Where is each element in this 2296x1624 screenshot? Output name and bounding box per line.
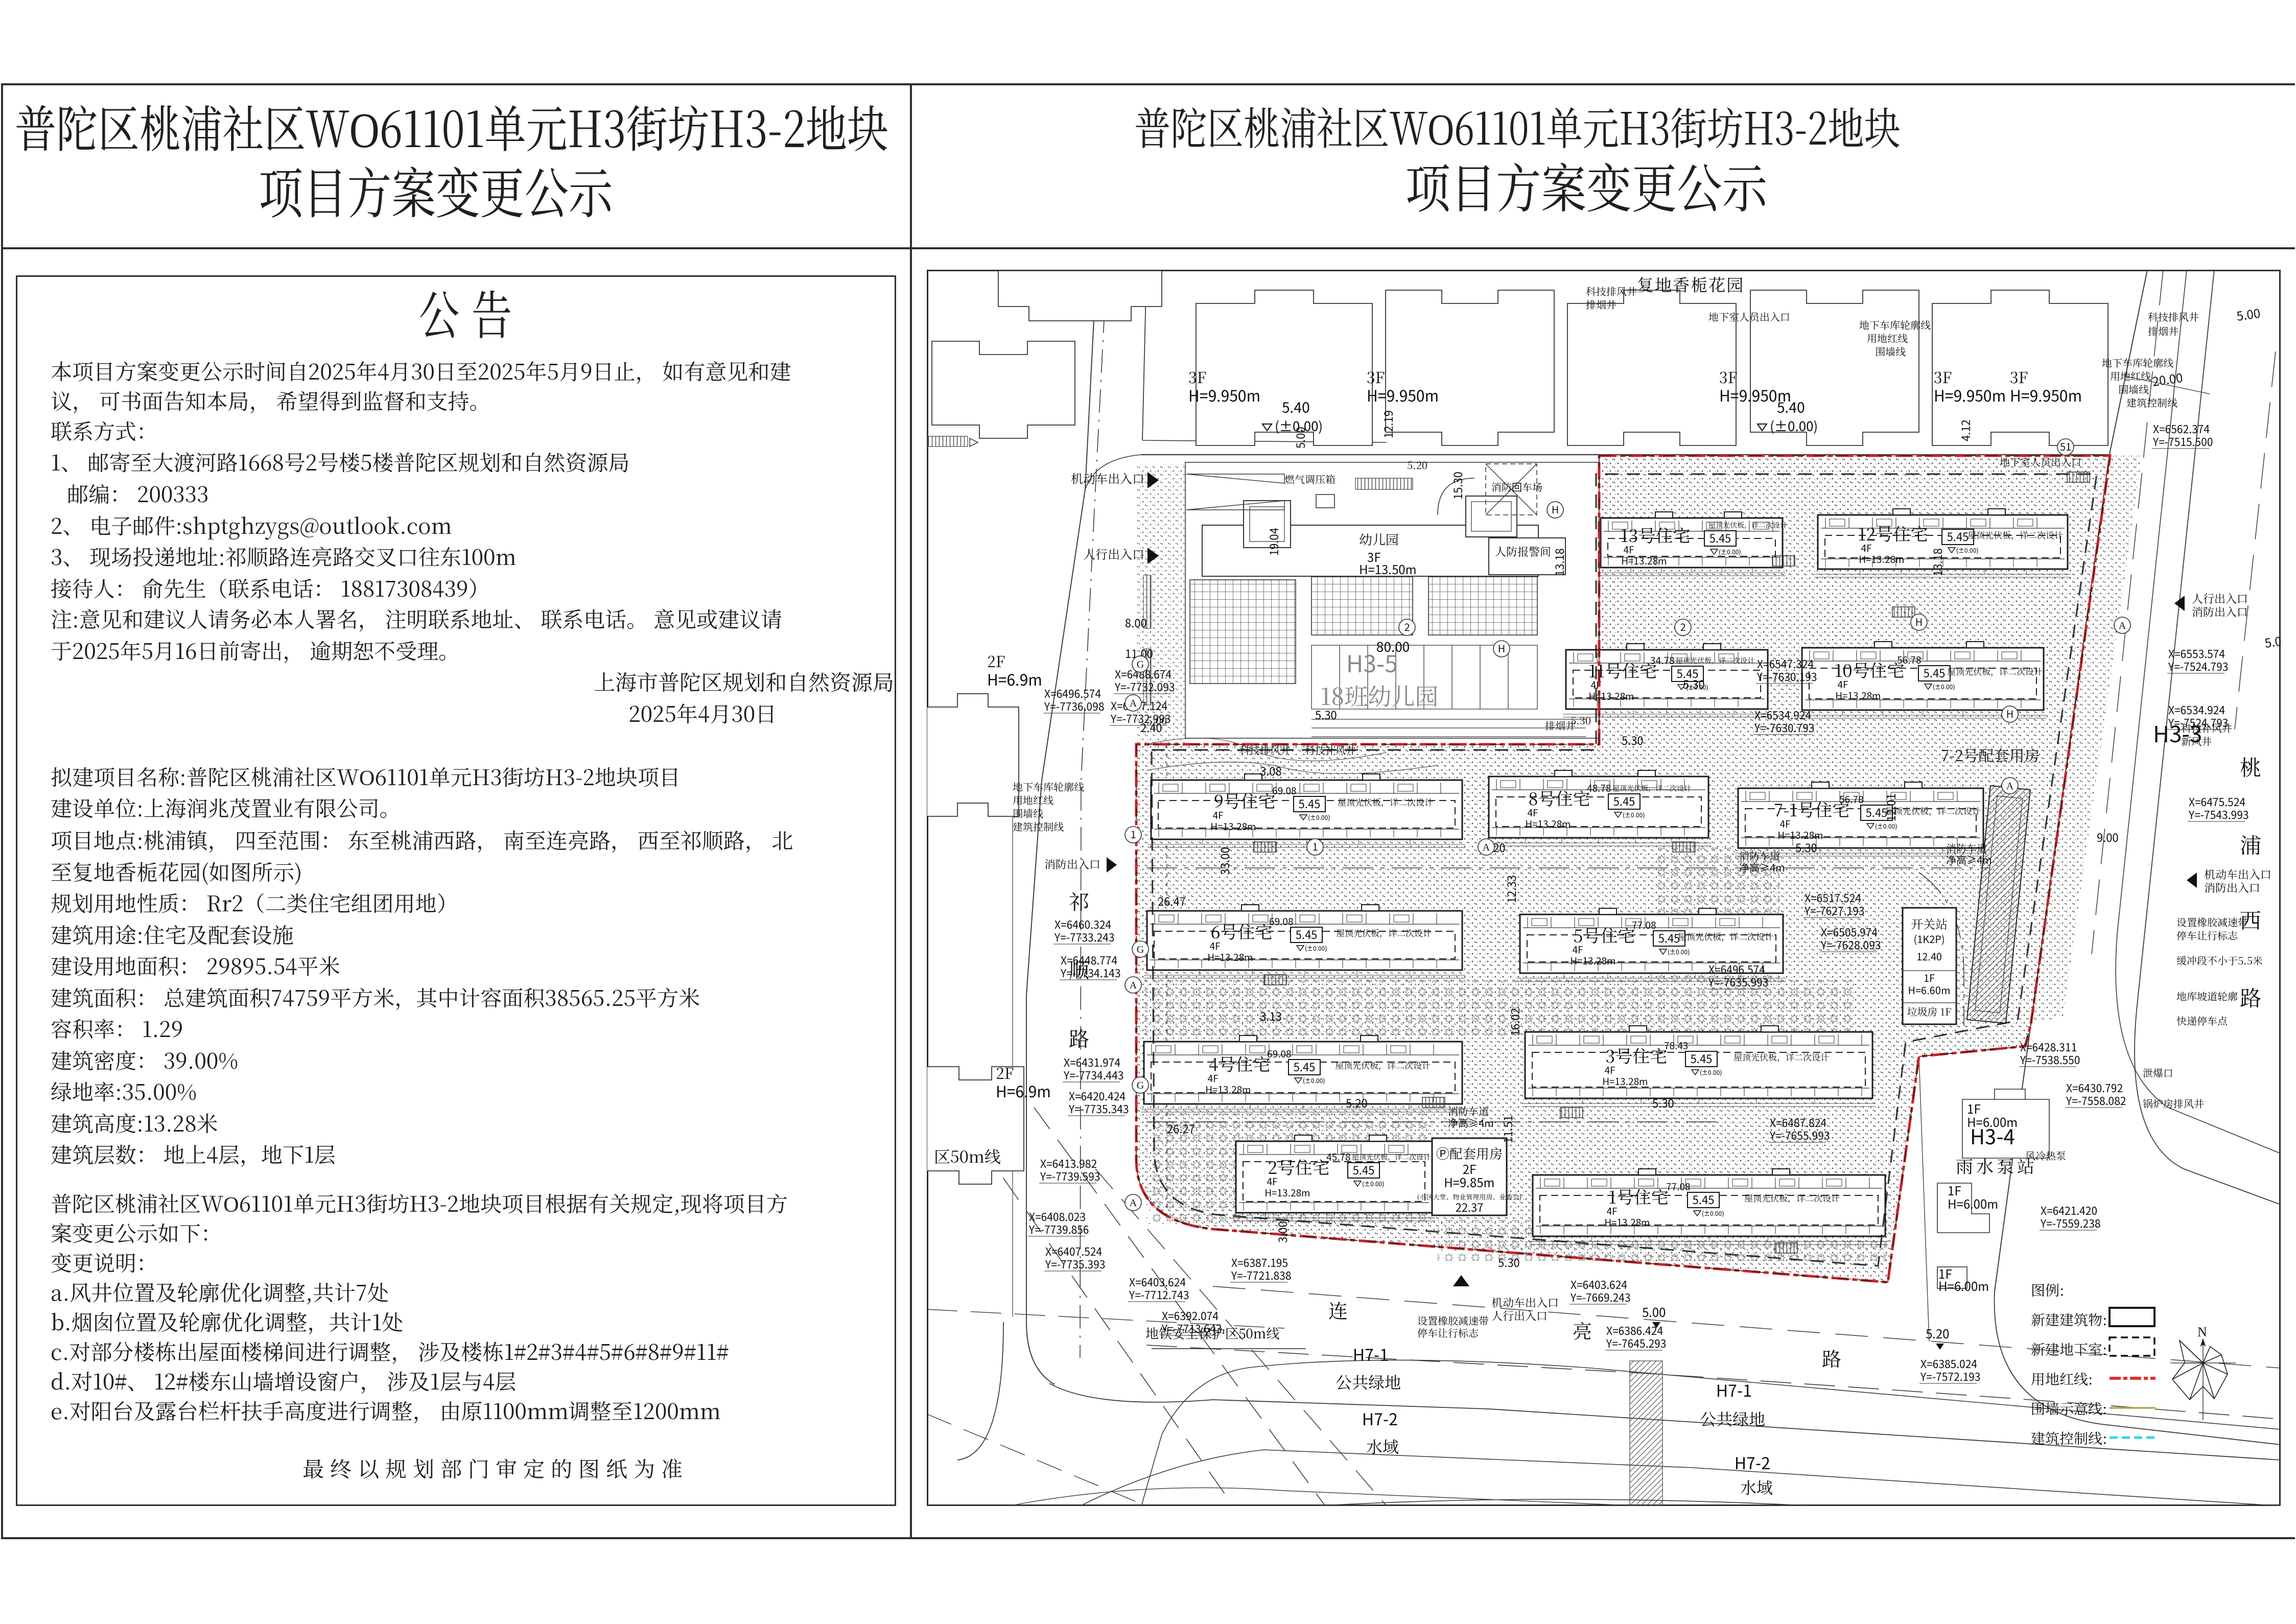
- svg-text:1: 1: [1130, 827, 1136, 841]
- svg-text:H=6.9m: H=6.9m: [996, 1079, 1051, 1102]
- svg-text:连: 连: [1328, 1296, 1348, 1324]
- svg-text:(±0.00): (±0.00): [1770, 416, 1818, 435]
- svg-text:新建地下室:: 新建地下室:: [2031, 1339, 2107, 1359]
- svg-text:H=9.950m: H=9.950m: [1188, 384, 1260, 406]
- svg-text:78.43: 78.43: [1664, 1039, 1688, 1052]
- svg-text:A: A: [1483, 839, 1490, 854]
- svg-text:H7-2: H7-2: [1735, 1451, 1770, 1474]
- svg-text:77.08: 77.08: [1666, 1180, 1690, 1193]
- svg-text:Y=-7713.643: Y=-7713.643: [1162, 1321, 1222, 1336]
- svg-text:Y=-7635.993: Y=-7635.993: [1708, 975, 1769, 990]
- svg-text:H=13.28m: H=13.28m: [1205, 1082, 1251, 1096]
- svg-text:5.30: 5.30: [1652, 1095, 1674, 1111]
- svg-text:地库坡道轮廓: 地库坡道轮廓: [2176, 988, 2238, 1003]
- svg-text:(1K2P): (1K2P): [1913, 931, 1944, 946]
- svg-text:(±0.00): (±0.00): [1308, 813, 1330, 822]
- svg-text:5.00: 5.00: [2263, 630, 2281, 651]
- svg-text:5.45: 5.45: [1693, 1191, 1715, 1208]
- svg-text:H: H: [1915, 614, 1923, 629]
- svg-text:A: A: [1130, 695, 1137, 710]
- svg-text:Y=-7559.238: Y=-7559.238: [2041, 1216, 2101, 1231]
- svg-text:5.30: 5.30: [1683, 676, 1705, 692]
- svg-text:69.08: 69.08: [1267, 1047, 1291, 1061]
- svg-text:消防出入口: 消防出入口: [1044, 856, 1100, 872]
- svg-text:13.18: 13.18: [1551, 548, 1567, 576]
- svg-text:Y=-7627.193: Y=-7627.193: [1805, 903, 1865, 919]
- svg-text:5.20: 5.20: [1926, 1324, 1950, 1342]
- svg-text:建筑控制线:: 建筑控制线:: [2031, 1428, 2107, 1448]
- svg-text:人防报警间: 人防报警间: [1495, 544, 1551, 559]
- svg-text:20.00: 20.00: [2151, 368, 2184, 390]
- svg-text:亮: 亮: [1573, 1316, 1592, 1344]
- svg-text:Y=-7558.082: Y=-7558.082: [2066, 1093, 2126, 1109]
- svg-text:3.00: 3.00: [1274, 1221, 1291, 1243]
- svg-text:2: 2: [1680, 619, 1685, 634]
- svg-text:净高≥4m: 净高≥4m: [1448, 1115, 1494, 1130]
- svg-text:Y=-7515.500: Y=-7515.500: [2153, 434, 2213, 450]
- svg-text:地下室人员出入口: 地下室人员出入口: [2000, 454, 2081, 469]
- svg-text:科技排风井: 科技排风井: [1239, 742, 1291, 757]
- svg-text:H=13.28m: H=13.28m: [1604, 1215, 1650, 1229]
- svg-text:2: 2: [1404, 619, 1410, 634]
- svg-text:(±0.00): (±0.00): [1875, 822, 1897, 831]
- svg-text:H=6.9m: H=6.9m: [987, 668, 1042, 690]
- svg-text:H=6.00m: H=6.00m: [1948, 1194, 1999, 1212]
- svg-text:垃圾房 1F: 垃圾房 1F: [1907, 1004, 1951, 1019]
- svg-text:H: H: [1498, 641, 1506, 655]
- svg-text:Y=-7712.743: Y=-7712.743: [1129, 1287, 1189, 1303]
- svg-text:77.08: 77.08: [1632, 918, 1656, 932]
- svg-text:H=13.28m: H=13.28m: [1859, 552, 1904, 566]
- svg-text:45.78: 45.78: [1326, 1150, 1350, 1164]
- svg-text:48.78: 48.78: [1587, 781, 1611, 795]
- svg-text:科技排风井: 科技排风井: [2148, 309, 2199, 324]
- svg-text:(±0.00): (±0.00): [1933, 682, 1955, 691]
- svg-text:消防出入口: 消防出入口: [2204, 880, 2260, 896]
- svg-text:Y=-7734.443: Y=-7734.443: [1064, 1068, 1124, 1083]
- svg-text:屋顶光伏板，详二次设计: 屋顶光伏板，详二次设计: [1335, 1058, 1431, 1071]
- svg-text:人行出入口: 人行出入口: [1083, 545, 1144, 562]
- svg-text:G: G: [1137, 1077, 1144, 1092]
- svg-text:地下车库轮廓线: 地下车库轮廓线: [1013, 779, 1084, 794]
- svg-text:屋顶光伏板，详二次设计: 屋顶光伏板，详二次设计: [1336, 926, 1432, 939]
- svg-text:5.40: 5.40: [1282, 397, 1309, 417]
- svg-text:(±0.00): (±0.00): [1303, 1076, 1325, 1085]
- svg-text:H=9.950m: H=9.950m: [2010, 384, 2082, 406]
- svg-text:80.00: 80.00: [1376, 637, 1410, 656]
- svg-text:Y=-7645.293: Y=-7645.293: [1606, 1336, 1667, 1351]
- svg-text:(±0.00): (±0.00): [1700, 1068, 1722, 1077]
- svg-text:H=13.28m: H=13.28m: [1525, 817, 1571, 831]
- svg-text:屋顶光伏板，详二次设计: 屋顶光伏板，详二次设计: [1967, 528, 2063, 541]
- svg-text:停车让行标志: 停车让行标志: [1417, 1325, 1479, 1340]
- svg-text:区50m线: 区50m线: [934, 1144, 1001, 1168]
- svg-text:幼儿园: 幼儿园: [1359, 530, 1399, 549]
- svg-text:5.00: 5.00: [1642, 1303, 1666, 1321]
- svg-text:5.45: 5.45: [1924, 665, 1946, 681]
- svg-text:H=13.28m: H=13.28m: [1264, 1186, 1310, 1199]
- svg-text:69.08: 69.08: [1272, 784, 1296, 797]
- svg-text:H=6.00m: H=6.00m: [1938, 1277, 1989, 1295]
- svg-text:屋顶光伏板，详二次设计: 屋顶光伏板，详二次设计: [1352, 1152, 1431, 1162]
- svg-text:5.20: 5.20: [1346, 1095, 1368, 1111]
- svg-text:5.30: 5.30: [1795, 839, 1817, 856]
- svg-text:开关站: 开关站: [1911, 914, 1948, 932]
- svg-text:5.45: 5.45: [1947, 528, 1969, 545]
- svg-text:(±0.00): (±0.00): [1305, 944, 1327, 953]
- svg-text:H: H: [1552, 502, 1559, 516]
- svg-text:地下室人员出入口: 地下室人员出入口: [1708, 309, 1790, 324]
- svg-text:3.08: 3.08: [1260, 763, 1282, 779]
- svg-text:科技排风井: 科技排风井: [1586, 284, 1637, 298]
- svg-text:用地红线: 用地红线: [2110, 368, 2151, 383]
- svg-text:1: 1: [1312, 839, 1318, 854]
- svg-text:建筑控制线: 建筑控制线: [2126, 395, 2177, 410]
- svg-text:12.19: 12.19: [1380, 410, 1396, 438]
- svg-text:(±0.00): (±0.00): [1362, 1180, 1384, 1188]
- svg-text:公共绿地: 公共绿地: [1700, 1407, 1765, 1430]
- svg-text:排烟井: 排烟井: [1586, 297, 1616, 312]
- svg-text:设置橡胶减速带: 设置橡胶减速带: [2176, 914, 2248, 929]
- svg-text:Y=-7543.993: Y=-7543.993: [2189, 807, 2249, 822]
- svg-text:围墙线: 围墙线: [1875, 344, 1906, 359]
- svg-text:净高≥4m: 净高≥4m: [1739, 860, 1785, 875]
- svg-text:Y=-7655.993: Y=-7655.993: [1770, 1128, 1830, 1143]
- svg-text:G: G: [1137, 656, 1144, 671]
- svg-text:34.78: 34.78: [1650, 653, 1674, 667]
- svg-text:H7-2: H7-2: [1362, 1407, 1398, 1430]
- svg-text:公共绿地: 公共绿地: [1336, 1370, 1401, 1394]
- svg-text:锅炉房排风井: 锅炉房排风井: [2143, 1096, 2204, 1111]
- svg-text:浦: 浦: [2240, 829, 2261, 860]
- svg-text:H=13.28m: H=13.28m: [1835, 689, 1881, 702]
- svg-text:Y=-7739.593: Y=-7739.593: [1040, 1169, 1100, 1184]
- svg-text:复地香栀花园: 复地香栀花园: [1637, 272, 1744, 296]
- svg-text:Y=-7739.856: Y=-7739.856: [1029, 1222, 1089, 1237]
- svg-text:26.47: 26.47: [1158, 893, 1186, 909]
- svg-text:Y=-7628.093: Y=-7628.093: [1821, 937, 1881, 953]
- svg-text:Y=-7538.550: Y=-7538.550: [2020, 1052, 2080, 1068]
- svg-text:69.08: 69.08: [1269, 914, 1293, 928]
- svg-text:7-2号配套用房: 7-2号配套用房: [1941, 743, 2040, 766]
- svg-text:屋顶光伏板，详二次设计: 屋顶光伏板，详二次设计: [1744, 1191, 1840, 1204]
- svg-text:Y=-7732.093: Y=-7732.093: [1115, 679, 1175, 695]
- svg-text:(±0.00): (±0.00): [1668, 948, 1690, 956]
- svg-text:5.30: 5.30: [1315, 707, 1337, 723]
- svg-text:用地红线: 用地红线: [1013, 792, 1053, 807]
- svg-text:Y=-7572.193: Y=-7572.193: [1920, 1369, 1981, 1384]
- svg-text:屋顶光伏板，详二次设计: 屋顶光伏板，详二次设计: [1947, 665, 2043, 677]
- svg-text:净高≥4m: 净高≥4m: [1946, 852, 1992, 867]
- svg-text:3.13: 3.13: [1260, 1008, 1282, 1024]
- svg-text:5.00: 5.00: [1292, 427, 1308, 449]
- svg-text:用地红线:: 用地红线:: [2031, 1369, 2093, 1389]
- svg-text:H=9.950m: H=9.950m: [1367, 384, 1439, 406]
- svg-text:1号住宅: 1号住宅: [1608, 1184, 1669, 1209]
- svg-text:56.78: 56.78: [1839, 792, 1863, 806]
- svg-text:5.30: 5.30: [1498, 1254, 1520, 1270]
- svg-text:H=13.28m: H=13.28m: [1621, 554, 1667, 568]
- svg-text:屋顶光伏板，详二次设计: 屋顶光伏板，详二次设计: [1733, 1050, 1829, 1063]
- svg-text:消防出入口: 消防出入口: [2192, 604, 2248, 620]
- svg-text:5.45: 5.45: [1709, 530, 1731, 546]
- svg-text:H=6.60m: H=6.60m: [1908, 982, 1950, 997]
- svg-text:风冷热泵: 风冷热泵: [2025, 1148, 2066, 1163]
- svg-text:9.00: 9.00: [2097, 829, 2119, 845]
- svg-text:H7-1: H7-1: [1353, 1343, 1389, 1366]
- svg-text:5.45: 5.45: [1294, 1058, 1316, 1075]
- svg-text:G: G: [1137, 941, 1144, 956]
- svg-text:排烟井: 排烟井: [2148, 323, 2178, 338]
- svg-text:泄爆口: 泄爆口: [2143, 1065, 2173, 1080]
- svg-text:5.45: 5.45: [1613, 793, 1635, 809]
- svg-text:5.20: 5.20: [1407, 457, 1427, 472]
- svg-text:停车让行标志: 停车让行标志: [2176, 928, 2238, 943]
- svg-text:消防回车场: 消防回车场: [1491, 479, 1542, 494]
- svg-text:Y=-7735.393: Y=-7735.393: [1045, 1257, 1106, 1272]
- svg-text:桃: 桃: [2240, 751, 2261, 782]
- svg-text:H7-1: H7-1: [1716, 1378, 1752, 1402]
- svg-text:水域: 水域: [1740, 1475, 1773, 1499]
- svg-text:5.45: 5.45: [1353, 1162, 1375, 1178]
- svg-text:Y=-7735.343: Y=-7735.343: [1069, 1101, 1129, 1117]
- svg-text:4.12: 4.12: [1957, 419, 1974, 441]
- svg-text:51: 51: [2060, 439, 2071, 454]
- svg-text:H=13.28m: H=13.28m: [1207, 950, 1253, 964]
- svg-text:屋顶光伏板，详二次设计: 屋顶光伏板，详二次设计: [1676, 655, 1754, 666]
- svg-text:H=13.28m: H=13.28m: [1210, 819, 1256, 833]
- svg-text:(±0.00): (±0.00): [1702, 1209, 1724, 1218]
- svg-text:12.40: 12.40: [1916, 949, 1942, 963]
- svg-text:围墙线: 围墙线: [2118, 382, 2149, 396]
- svg-text:燃气调压箱: 燃气调压箱: [1284, 472, 1336, 486]
- svg-text:祁: 祁: [1069, 886, 1089, 915]
- svg-text:H: H: [2006, 706, 2014, 721]
- svg-text:5.45: 5.45: [1299, 795, 1321, 812]
- svg-text:缓冲段不小于5.5米: 缓冲段不小于5.5米: [2176, 953, 2263, 968]
- svg-text:12.33: 12.33: [1503, 875, 1519, 903]
- svg-text:地下车库轮廓线: 地下车库轮廓线: [1859, 317, 1931, 332]
- svg-text:(±0.00): (±0.00): [1956, 546, 1978, 555]
- svg-text:16.02: 16.02: [1507, 1008, 1523, 1036]
- svg-text:路: 路: [2240, 982, 2261, 1013]
- svg-text:Y=-7721.838: Y=-7721.838: [1231, 1268, 1292, 1283]
- svg-text:路: 路: [1822, 1344, 1841, 1372]
- svg-text:人行出入口: 人行出入口: [1491, 1308, 1548, 1324]
- svg-text:5.30: 5.30: [1571, 713, 1591, 727]
- svg-text:新风井: 新风井: [2181, 734, 2212, 748]
- svg-text:Y=-7734.143: Y=-7734.143: [1061, 966, 1121, 981]
- svg-text:22.37: 22.37: [1456, 1199, 1484, 1215]
- svg-text:H=6.00m: H=6.00m: [1967, 1113, 2018, 1131]
- svg-text:A: A: [2119, 617, 2126, 632]
- svg-text:15.30: 15.30: [1449, 472, 1466, 500]
- svg-text:Y=-7733.243: Y=-7733.243: [1055, 930, 1115, 945]
- svg-text:5.40: 5.40: [1777, 397, 1805, 417]
- svg-text:5.45: 5.45: [1691, 1050, 1713, 1067]
- svg-text:13.18: 13.18: [1929, 548, 1946, 576]
- svg-text:33.00: 33.00: [1216, 847, 1233, 875]
- svg-text:地下车库轮廓线: 地下车库轮廓线: [2102, 355, 2173, 370]
- svg-text:H=13.50m: H=13.50m: [1359, 560, 1417, 578]
- svg-text:5.45: 5.45: [1296, 926, 1318, 943]
- svg-text:路: 路: [1069, 1023, 1089, 1052]
- svg-text:科技补风井: 科技补风井: [1305, 742, 1356, 757]
- svg-text:8.00: 8.00: [1125, 615, 1147, 631]
- svg-text:Y=-7669.243: Y=-7669.243: [1571, 1290, 1631, 1305]
- svg-text:(±0.00): (±0.00): [1623, 811, 1645, 819]
- svg-text:26.27: 26.27: [1167, 1120, 1195, 1137]
- svg-text:新建建筑物:: 新建建筑物:: [2031, 1309, 2107, 1330]
- svg-text:Y=-7736.098: Y=-7736.098: [1044, 699, 1105, 714]
- svg-text:H=9.85m: H=9.85m: [1444, 1173, 1495, 1191]
- svg-text:A: A: [2006, 778, 2014, 792]
- svg-text:N: N: [2197, 1322, 2207, 1340]
- svg-text:Y=-7524.793: Y=-7524.793: [2168, 659, 2229, 674]
- svg-text:56.78: 56.78: [1897, 653, 1921, 667]
- svg-text:Y=-7630.793: Y=-7630.793: [1754, 720, 1815, 736]
- svg-text:科技补风井: 科技补风井: [2181, 720, 2232, 735]
- svg-text:屋顶光伏板，详二次设计: 屋顶光伏板，详二次设计: [1612, 783, 1691, 793]
- svg-text:12.01: 12.01: [1883, 793, 1899, 821]
- svg-text:A: A: [1130, 977, 1137, 992]
- svg-text:Y=-7630.193: Y=-7630.193: [1757, 669, 1817, 685]
- svg-text:图例:: 图例:: [2031, 1280, 2064, 1300]
- svg-text:5.45: 5.45: [1658, 930, 1680, 946]
- svg-text:机动车出入口: 机动车出入口: [1071, 469, 1144, 487]
- svg-text:屋顶光伏板，详二次设计: 屋顶光伏板，详二次设计: [1708, 520, 1787, 530]
- svg-text:屋顶光伏板，详二次设计: 屋顶光伏板，详二次设计: [1885, 804, 1981, 817]
- svg-text:围墙线: 围墙线: [1013, 806, 1043, 820]
- svg-text:快递停车点: 快递停车点: [2176, 1013, 2228, 1028]
- svg-text:11.51: 11.51: [1500, 1115, 1516, 1143]
- svg-text:屋顶光伏板，详二次设计: 屋顶光伏板，详二次设计: [1338, 795, 1433, 808]
- svg-text:水域: 水域: [1366, 1434, 1399, 1458]
- svg-text:5.00: 5.00: [1146, 713, 1167, 727]
- svg-text:H=13.28m: H=13.28m: [1602, 1074, 1648, 1088]
- svg-text:围墙示意线:: 围墙示意线:: [2031, 1398, 2107, 1419]
- svg-text:屋顶光伏板，详二次设计: 屋顶光伏板，详二次设计: [1678, 930, 1773, 943]
- svg-text:H=13.28m: H=13.28m: [1570, 954, 1615, 968]
- svg-text:A: A: [1130, 1194, 1137, 1209]
- svg-text:H=9.950m: H=9.950m: [1934, 384, 2006, 406]
- svg-text:5.30: 5.30: [1622, 732, 1644, 748]
- svg-text:5.00: 5.00: [2235, 303, 2261, 324]
- svg-text:建筑控制线: 建筑控制线: [1013, 819, 1064, 834]
- svg-text:18班幼儿园: 18班幼儿园: [1320, 678, 1438, 712]
- svg-text:用地红线: 用地红线: [1867, 331, 1908, 345]
- svg-text:(±0.00): (±0.00): [1719, 548, 1741, 556]
- svg-text:19.04: 19.04: [1266, 528, 1282, 556]
